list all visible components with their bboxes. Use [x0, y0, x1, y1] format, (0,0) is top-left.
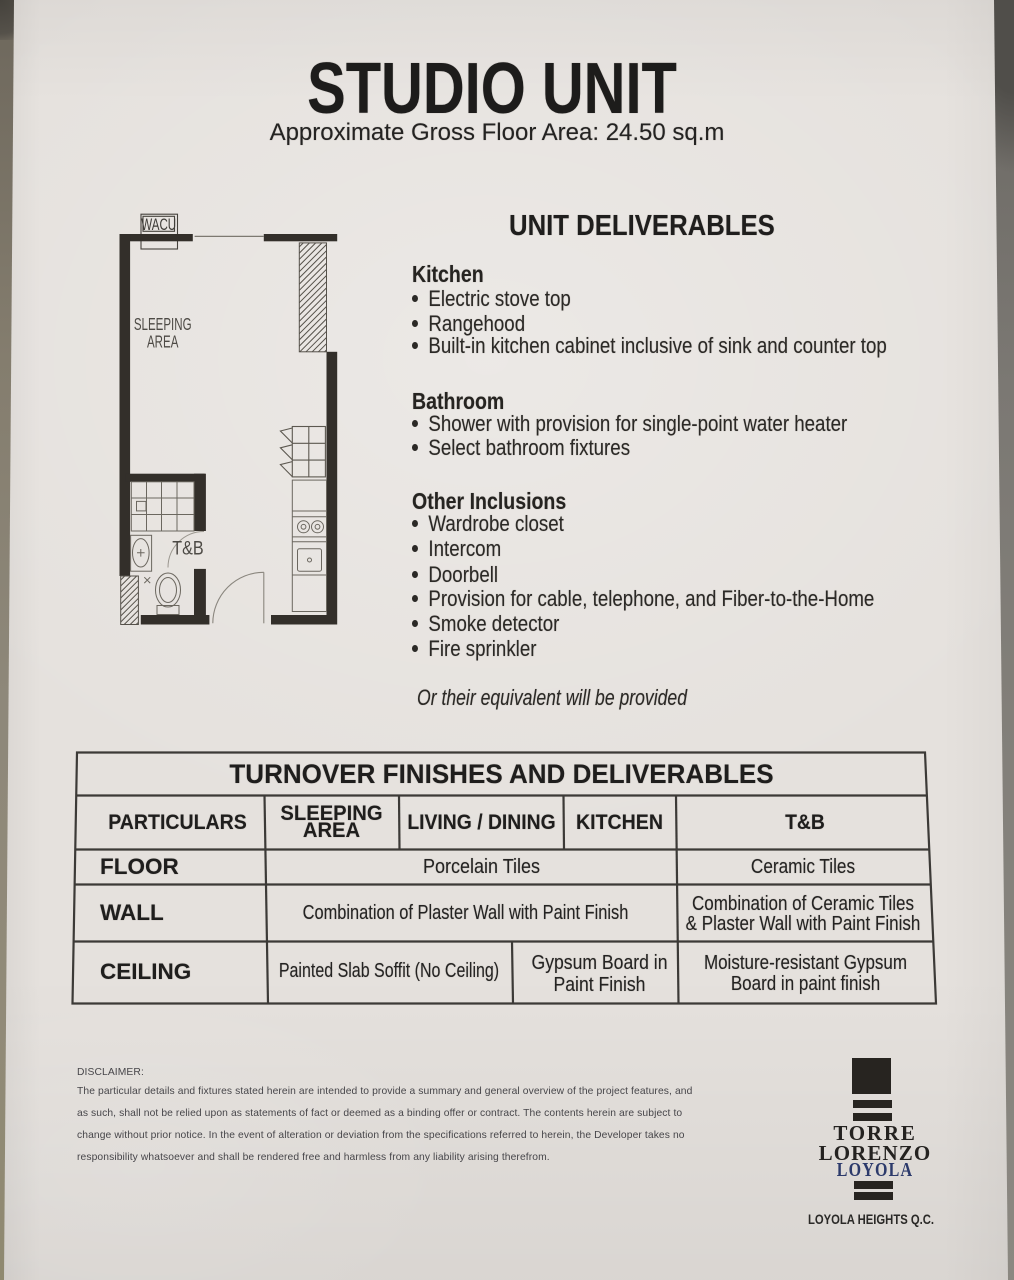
svg-text:AREA: AREA [147, 333, 179, 352]
svg-text:T&B: T&B [172, 537, 203, 559]
svg-text:WACU: WACU [141, 216, 176, 235]
svg-text:SLEEPING: SLEEPING [134, 316, 192, 335]
